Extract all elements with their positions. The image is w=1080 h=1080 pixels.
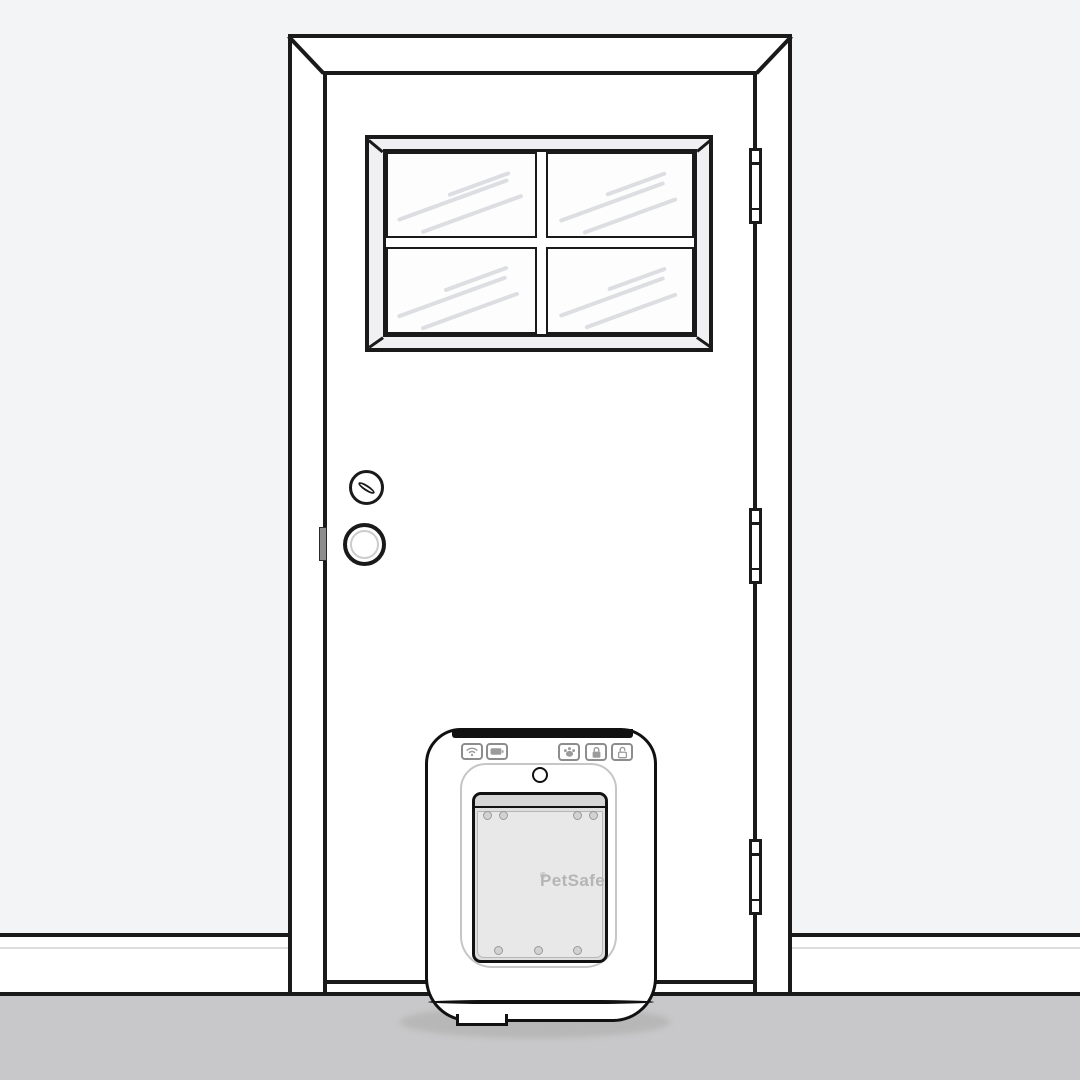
flap-screw [534, 946, 543, 955]
lock-closed-icon [591, 746, 602, 759]
hinge-knuckle [752, 162, 759, 165]
glass-streak [397, 178, 509, 222]
baseboard-groove [0, 947, 288, 949]
flap-screw [499, 811, 508, 820]
lock-open-icon [617, 746, 628, 759]
battery-button [486, 743, 508, 760]
window-pane-bottom-right [546, 247, 694, 334]
door-hinge-bottom [749, 839, 762, 915]
pet-door-flap-hinge [475, 795, 605, 808]
brand-text: PetSafe [540, 871, 605, 891]
paw-icon [563, 746, 576, 758]
baseboard-groove [792, 947, 1080, 949]
hinge-knuckle [752, 899, 759, 902]
paw-button [558, 743, 580, 761]
illustration-door-with-pet-door: PetSafe® [0, 0, 1080, 1080]
hinge-knuckle [752, 522, 759, 525]
door-strike-plate [319, 527, 327, 561]
pet-door-bottom-foot [456, 1014, 508, 1026]
glass-streak [420, 291, 519, 330]
unlock-button [611, 743, 633, 761]
window-pane-top-left [386, 152, 537, 238]
registered-mark: ® [540, 871, 546, 880]
wifi-icon [465, 746, 479, 757]
lock-button [585, 743, 607, 761]
flap-screw [494, 946, 503, 955]
flap-screw [589, 811, 598, 820]
flap-screw [483, 811, 492, 820]
window-pane-bottom-left [386, 247, 537, 334]
wifi-button [461, 743, 483, 760]
glass-streak [584, 292, 677, 329]
battery-icon [490, 747, 504, 756]
baseboard-left [0, 933, 288, 992]
deadbolt [349, 470, 384, 505]
flap-screw [573, 946, 582, 955]
window-muntin-horizontal [386, 238, 694, 247]
pet-door-base-seam [428, 1000, 654, 1004]
glass-streak [421, 194, 524, 235]
window-pane-top-right [546, 152, 694, 238]
glass-streak [397, 275, 507, 318]
flap-screw [573, 811, 582, 820]
door-hinge-middle [749, 508, 762, 584]
door-knob [343, 523, 386, 566]
glass-streak [582, 197, 677, 235]
pet-door-led-indicator [532, 767, 548, 783]
pet-door-top-trim [452, 729, 633, 738]
keyhole-icon [357, 480, 376, 495]
door-knob-inner-ring [350, 530, 379, 559]
hinge-knuckle [752, 853, 759, 856]
glass-streak [559, 276, 666, 318]
door-hinge-top [749, 148, 762, 224]
hinge-knuckle [752, 568, 759, 571]
baseboard-right [792, 933, 1080, 992]
hinge-knuckle [752, 208, 759, 211]
glass-streak [559, 181, 666, 223]
